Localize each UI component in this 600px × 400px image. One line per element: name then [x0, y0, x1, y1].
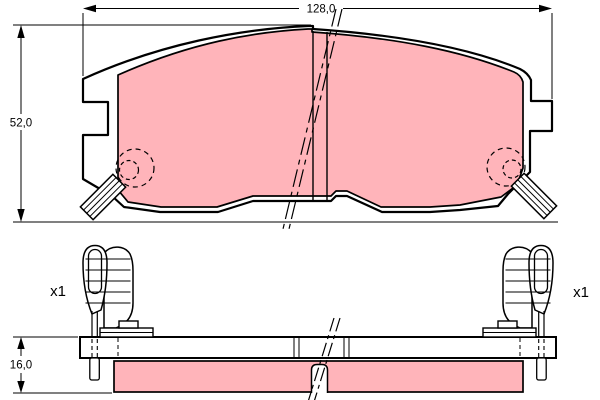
arrowhead-right [539, 5, 552, 12]
groove-notch-fill [312, 365, 328, 395]
arrowhead-down [17, 381, 24, 393]
height-dimension-label: 52,0 [10, 118, 32, 130]
brake-pad-technical-drawing: 128,0 52,0 16,0 x1 x1 [0, 0, 600, 400]
spring-clip-right [483, 246, 553, 381]
pad-plan-view [80, 9, 556, 229]
arrowhead-down [17, 209, 24, 222]
arrowhead-up [17, 25, 24, 38]
backing-plate-side [80, 337, 556, 358]
spring-clip-left [83, 246, 153, 381]
abutment-lug-right [511, 173, 556, 218]
clip-quantity-label-left: x1 [50, 283, 66, 300]
arrowhead-left [83, 5, 96, 12]
arrowhead-up [17, 337, 24, 349]
drawing-canvas: 128,0 52,0 16,0 x1 x1 [0, 0, 600, 400]
friction-material [118, 29, 523, 207]
width-dimension-label: 128,0 [307, 4, 336, 16]
thickness-dimension-label: 16,0 [10, 360, 32, 372]
clip-quantity-label-right: x1 [573, 284, 589, 301]
pad-edge-view [80, 246, 556, 400]
